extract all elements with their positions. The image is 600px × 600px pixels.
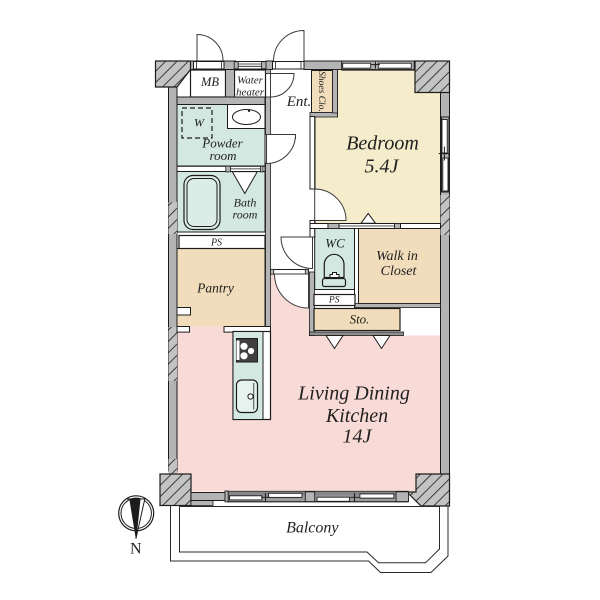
svg-text:Closet: Closet (381, 264, 418, 279)
svg-text:Bedroom: Bedroom (346, 133, 419, 155)
svg-text:5.4J: 5.4J (365, 156, 400, 178)
svg-text:Water: Water (237, 75, 264, 87)
svg-text:WC: WC (325, 236, 345, 251)
svg-text:Walk in: Walk in (376, 249, 418, 264)
svg-text:room: room (210, 148, 237, 163)
svg-text:PS: PS (328, 296, 340, 306)
svg-text:PS: PS (210, 238, 222, 249)
svg-text:MB: MB (200, 75, 219, 89)
svg-text:heater: heater (236, 87, 265, 99)
svg-text:Kitchen: Kitchen (325, 405, 388, 427)
svg-text:Living Dining: Living Dining (297, 383, 410, 405)
svg-text:Sto.: Sto. (350, 312, 370, 327)
svg-text:Pantry: Pantry (196, 281, 234, 296)
svg-text:N: N (130, 540, 142, 557)
svg-text:Balcony: Balcony (286, 520, 339, 537)
svg-text:Shoes Clo.: Shoes Clo. (316, 71, 326, 112)
svg-text:14J: 14J (343, 426, 373, 448)
svg-text:Ent.: Ent. (286, 94, 312, 110)
svg-text:room: room (233, 208, 258, 222)
svg-text:W: W (194, 115, 205, 129)
